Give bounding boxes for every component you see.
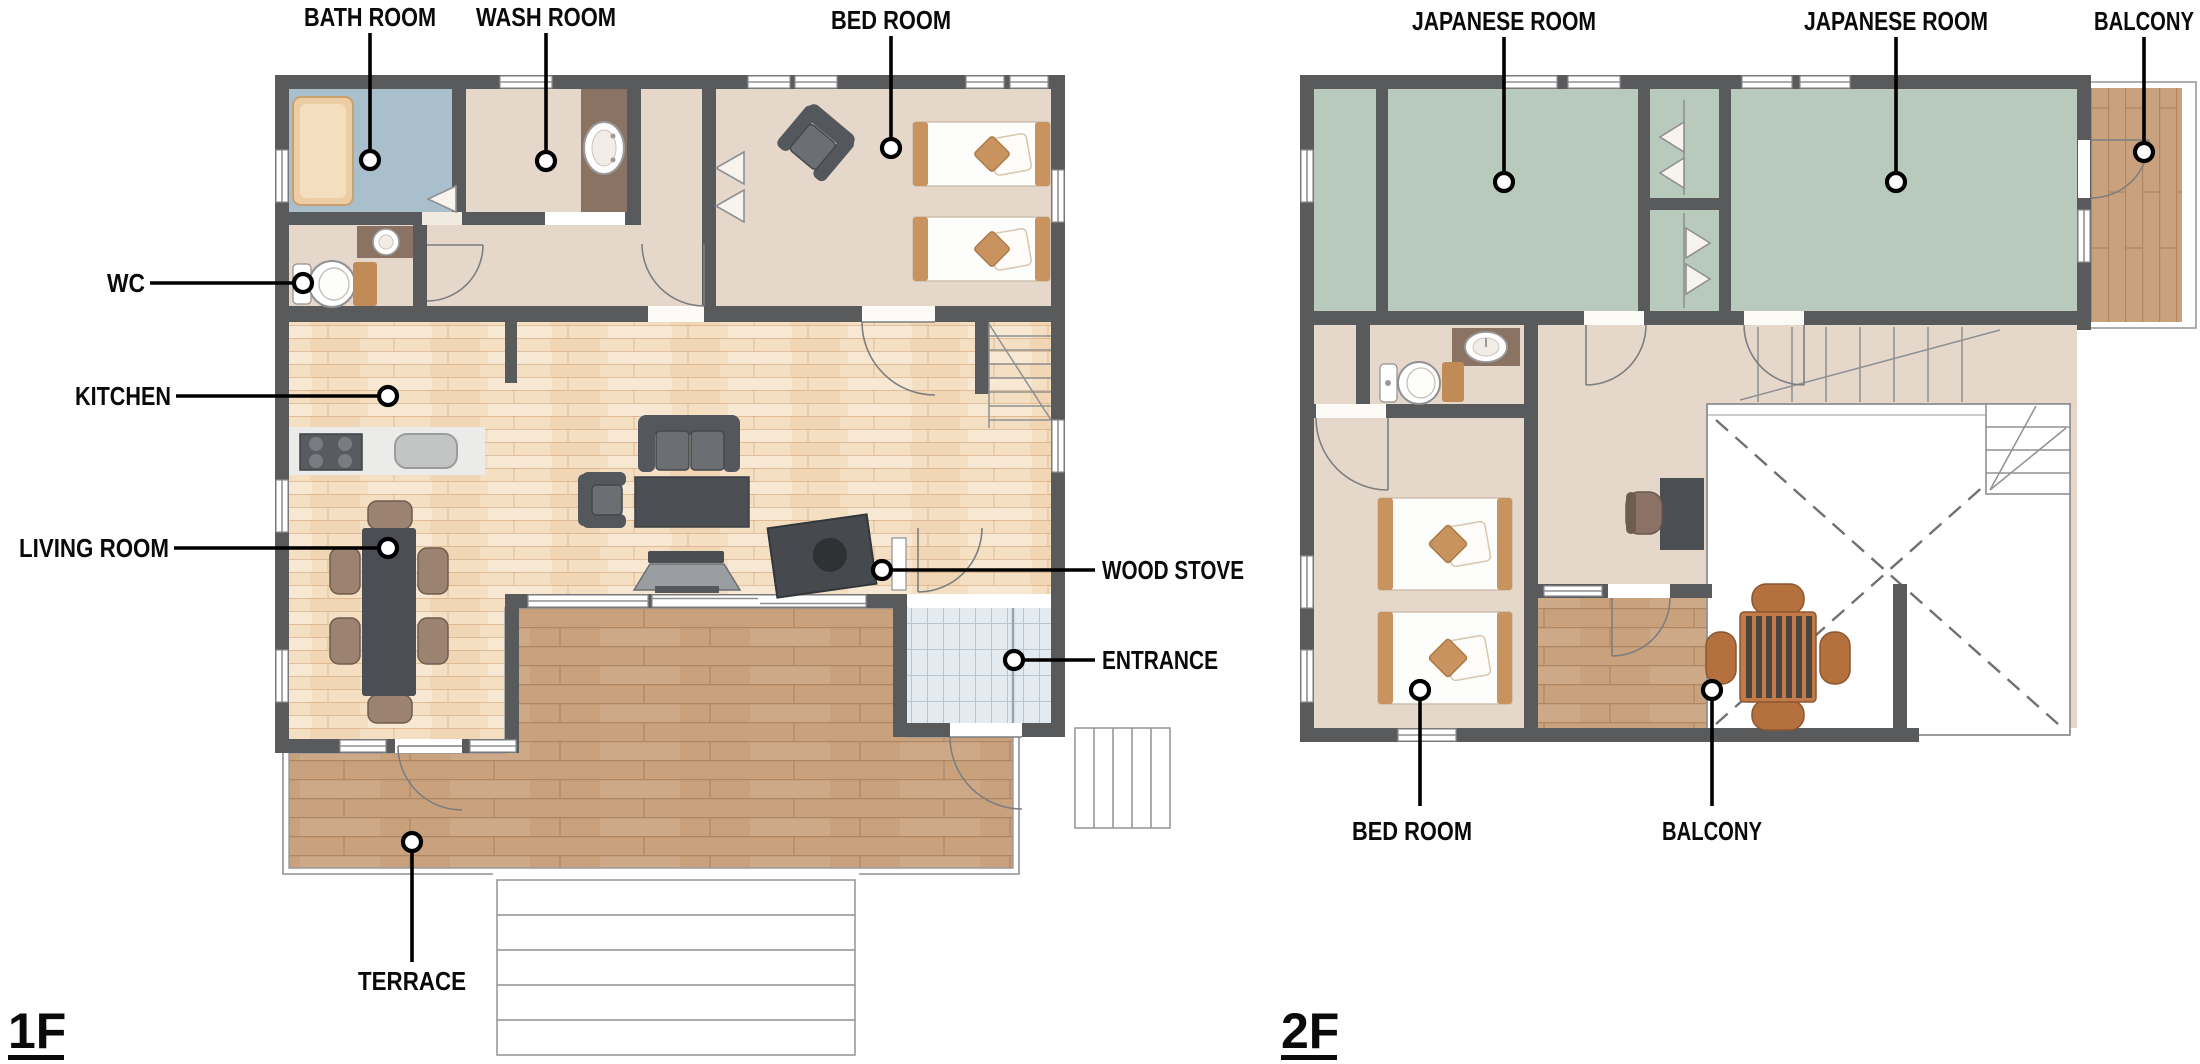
window bbox=[528, 595, 648, 607]
window bbox=[1052, 420, 1064, 472]
bed bbox=[913, 217, 1050, 281]
sliding-door bbox=[652, 595, 866, 607]
window bbox=[1398, 729, 1456, 741]
window bbox=[2078, 210, 2090, 262]
desk bbox=[1660, 478, 1704, 550]
label-wc: WC bbox=[107, 268, 145, 298]
plan-2f bbox=[1300, 75, 2196, 742]
kitchen-counter bbox=[289, 427, 485, 475]
window bbox=[1301, 556, 1313, 608]
window bbox=[1800, 76, 1850, 88]
window bbox=[340, 740, 386, 752]
floor2-underline bbox=[1281, 1055, 1337, 1060]
label-wood-stove: WOOD STOVE bbox=[1102, 555, 1244, 585]
floor-plan-sheet: BATH ROOM WASH ROOM BED ROOM WC KITCHEN … bbox=[0, 0, 2200, 1064]
cooktop bbox=[300, 434, 362, 470]
bathtub bbox=[293, 97, 353, 205]
wash-sink bbox=[584, 122, 624, 174]
label-living-room: LIVING ROOM bbox=[19, 533, 169, 563]
wood-stove bbox=[768, 514, 877, 597]
dining-chair bbox=[330, 548, 360, 594]
label-japanese-room-left: JAPANESE ROOM bbox=[1412, 6, 1596, 36]
label-japanese-room-right: JAPANESE ROOM bbox=[1804, 6, 1988, 36]
dining-chair bbox=[330, 618, 360, 664]
label-wash-room: WASH ROOM bbox=[476, 2, 616, 32]
dining-chair bbox=[418, 548, 448, 594]
window bbox=[1052, 170, 1064, 222]
floor-plan-drawing: BATH ROOM WASH ROOM BED ROOM WC KITCHEN … bbox=[0, 0, 2200, 1064]
window bbox=[1301, 650, 1313, 702]
balcony-chair bbox=[1706, 632, 1736, 684]
label-entrance: ENTRANCE bbox=[1102, 645, 1218, 675]
label-balcony-upper: BALCONY bbox=[2094, 6, 2194, 36]
label-bath-room: BATH ROOM bbox=[304, 2, 436, 32]
window bbox=[966, 76, 1004, 88]
window bbox=[1301, 150, 1313, 202]
wc-basin bbox=[373, 229, 399, 255]
living-armchair bbox=[578, 472, 626, 528]
window bbox=[276, 480, 288, 532]
entrance-tile bbox=[907, 608, 1051, 723]
dining-chair bbox=[368, 695, 412, 723]
dining-chair bbox=[368, 501, 412, 529]
desk-chair bbox=[1626, 492, 1662, 534]
balcony-chair bbox=[1752, 584, 1804, 614]
steps-side bbox=[1075, 728, 1170, 828]
coffee-table bbox=[635, 477, 749, 527]
bed bbox=[913, 122, 1050, 186]
floor1-title: 1F bbox=[8, 1003, 66, 1059]
sofa bbox=[638, 415, 740, 472]
bed bbox=[1378, 498, 1512, 590]
plan-1f bbox=[275, 75, 1170, 1055]
dining-chair bbox=[418, 618, 448, 664]
floor1-underline bbox=[8, 1055, 64, 1060]
window bbox=[1742, 76, 1792, 88]
balcony-chair bbox=[1752, 700, 1804, 730]
toilet-2f bbox=[1380, 362, 1464, 404]
bed bbox=[1378, 612, 1512, 704]
sink-2f bbox=[1465, 332, 1507, 362]
label-terrace: TERRACE bbox=[358, 966, 466, 996]
window bbox=[1544, 586, 1602, 596]
label-balcony-lower: BALCONY bbox=[1662, 816, 1762, 846]
entrance-door-panel bbox=[892, 538, 906, 590]
window bbox=[276, 650, 288, 702]
window bbox=[470, 740, 516, 752]
floor2-title: 2F bbox=[1281, 1003, 1339, 1059]
steps-main bbox=[497, 880, 855, 1055]
window bbox=[1010, 76, 1048, 88]
window bbox=[1568, 76, 1620, 88]
window bbox=[748, 76, 790, 88]
label-bed-room-2f: BED ROOM bbox=[1352, 816, 1472, 846]
window bbox=[276, 150, 288, 202]
balcony-chair bbox=[1820, 632, 1850, 684]
window bbox=[1505, 76, 1557, 88]
window bbox=[795, 76, 837, 88]
label-kitchen: KITCHEN bbox=[75, 381, 171, 411]
balcony-upper-floor bbox=[2085, 88, 2182, 322]
label-bed-room-1f: BED ROOM bbox=[831, 5, 951, 35]
kitchen-sink bbox=[395, 434, 457, 468]
